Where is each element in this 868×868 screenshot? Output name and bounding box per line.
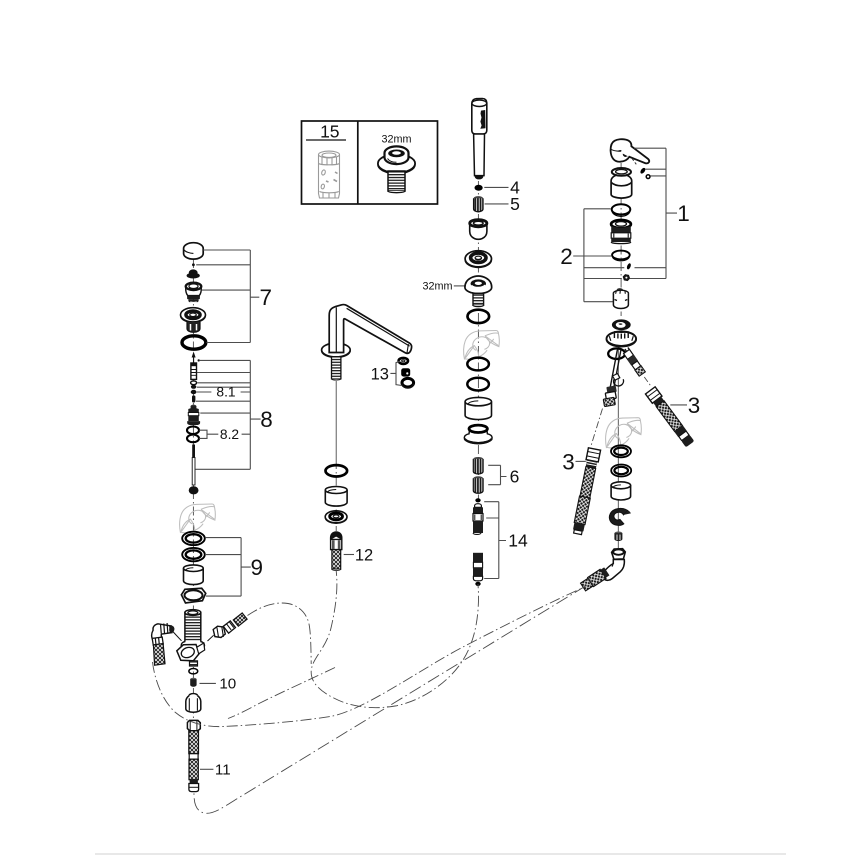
svg-text:13: 13	[371, 365, 389, 383]
svg-text:6: 6	[510, 467, 520, 487]
svg-text:15: 15	[320, 122, 339, 142]
svg-text:7: 7	[260, 285, 273, 310]
svg-text:11: 11	[215, 762, 231, 779]
svg-text:8.1: 8.1	[216, 385, 235, 400]
svg-text:3: 3	[688, 393, 701, 418]
svg-text:10: 10	[219, 676, 236, 693]
svg-text:32mm: 32mm	[382, 134, 412, 146]
svg-text:3: 3	[562, 450, 575, 475]
svg-text:1: 1	[677, 201, 690, 226]
svg-text:14: 14	[508, 531, 528, 551]
svg-text:2: 2	[560, 244, 573, 269]
svg-text:8.2: 8.2	[220, 427, 239, 442]
svg-text:32mm: 32mm	[423, 281, 453, 293]
svg-text:9: 9	[251, 555, 264, 580]
svg-text:5: 5	[510, 194, 520, 214]
svg-text:12: 12	[355, 546, 373, 564]
svg-text:8: 8	[260, 407, 273, 432]
